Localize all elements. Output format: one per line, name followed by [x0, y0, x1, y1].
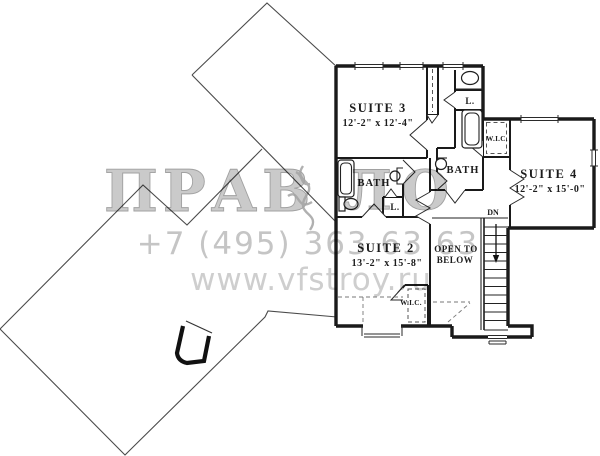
floorplan-page: SUITE 3 12'-2" x 12'-4" SUITE 4 12'-2" x… — [0, 0, 600, 456]
chimney-mark — [177, 321, 212, 363]
suite3-dims: 12'-2" x 12'-4" — [343, 118, 414, 129]
vanity-sink — [462, 72, 479, 85]
wic-top-label: W.I.C. — [486, 135, 508, 143]
stairs-dn-label: DN — [487, 208, 499, 217]
suite4-dims: 12'-2" x 15'-0" — [515, 184, 586, 195]
floorplan-drawing: SUITE 3 12'-2" x 12'-4" SUITE 4 12'-2" x… — [0, 0, 600, 456]
watermark-brand-left: ПРАВ — [104, 158, 315, 225]
linen-top-label: L. — [465, 96, 474, 106]
watermark-brand-right: ЛО — [344, 158, 459, 222]
wic-bottom-label: W.I.C. — [400, 299, 422, 307]
watermark-phone: +7 (495) 363 63 63 — [137, 226, 480, 262]
watermark: ПРАВ ЛО +7 (495) 363 63 63 www.vfstroy.r… — [104, 158, 479, 298]
suite3-name: SUITE 3 — [349, 101, 406, 115]
stairs — [481, 218, 508, 330]
suite4-name: SUITE 4 — [520, 167, 577, 181]
watermark-url: www.vfstroy.ru — [190, 262, 432, 298]
